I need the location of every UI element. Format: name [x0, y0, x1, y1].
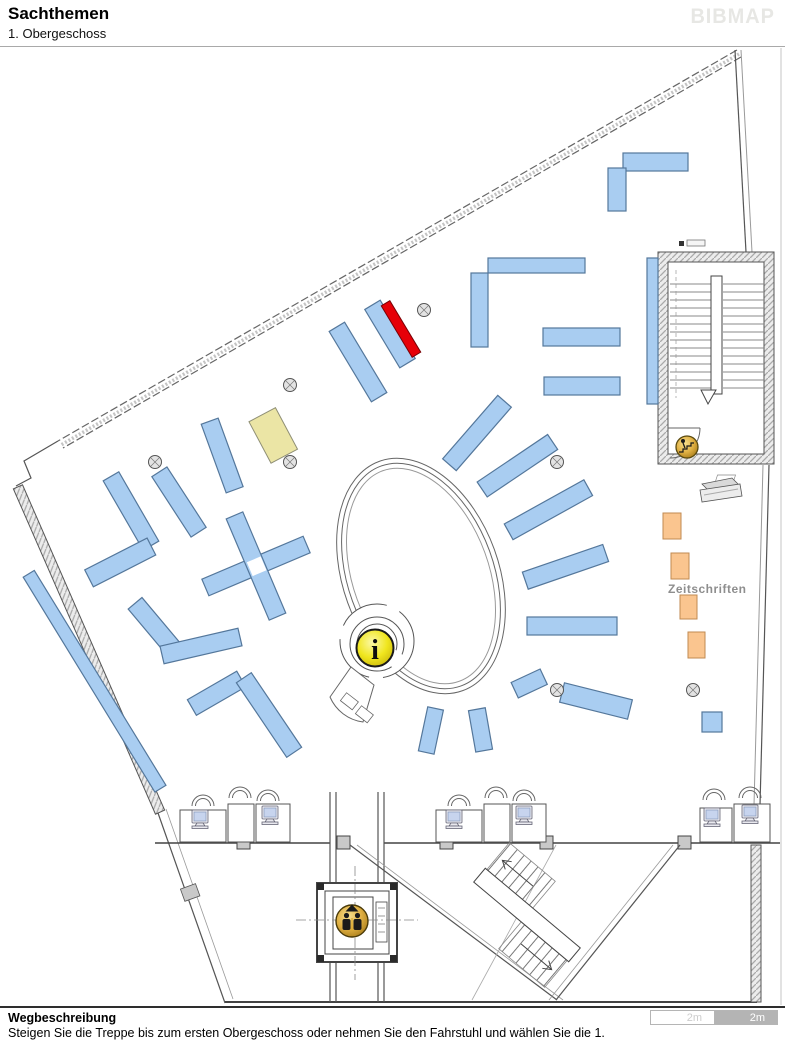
footer: Wegbeschreibung Steigen Sie die Treppe b…: [0, 1006, 785, 1043]
computer-workstation-icon: [516, 806, 532, 825]
floor-subtitle: 1. Obergeschoss: [8, 26, 106, 41]
bookshelf: [488, 258, 585, 273]
bookshelf: [511, 669, 547, 698]
elevator: [296, 792, 418, 1002]
bookshelf: [418, 707, 443, 754]
column-icon: [149, 456, 162, 469]
bookshelf: [236, 673, 301, 758]
column-icon: [551, 684, 564, 697]
bookshelf: [468, 708, 492, 752]
bookshelf: [560, 683, 633, 719]
open-staircase: [350, 841, 680, 1000]
bookshelf: [504, 480, 592, 540]
directions-text: Steigen Sie die Treppe bis zum ersten Ob…: [8, 1026, 605, 1040]
page-header: Sachthemen 1. Obergeschoss BIBMAP: [0, 0, 785, 47]
magazine-shelves: Zeitschriften: [663, 513, 747, 658]
magazine-shelf: [671, 553, 689, 579]
computer-workstation-icon: [192, 810, 208, 829]
bookshelf: [103, 472, 159, 550]
computer-workstation-icon: [704, 808, 720, 827]
stairwell: [658, 240, 774, 464]
column-icon: [284, 456, 297, 469]
bookshelf: [527, 617, 617, 635]
magazines-label: Zeitschriften: [668, 582, 747, 596]
counter: [155, 836, 780, 901]
copier-icon: [700, 475, 742, 502]
workstation-group: [436, 787, 546, 842]
elevator-icon: [336, 905, 368, 938]
bookshelf: [647, 258, 658, 404]
column-icon: [551, 456, 564, 469]
computer-workstation-icon: [446, 810, 462, 829]
special-shelf: [249, 408, 298, 464]
map-scale-bar: 2m 2m: [650, 1010, 778, 1025]
bookshelf: [152, 467, 206, 537]
directions-heading: Wegbeschreibung: [8, 1011, 116, 1025]
info-icon-letter: i: [371, 635, 379, 666]
stairs-icon: [676, 436, 698, 458]
magazine-shelf: [688, 632, 705, 658]
scale-segment: 2m: [650, 1010, 714, 1025]
bookshelf: [201, 418, 243, 493]
bookshelf: [477, 434, 558, 496]
workstation-group: [700, 787, 770, 842]
magazine-shelf: [680, 595, 697, 619]
bibmap-logo: BIBMAP: [691, 5, 775, 29]
info-desk: i: [330, 604, 414, 723]
column-icon: [687, 684, 700, 697]
bookshelf: [543, 328, 620, 346]
bookshelf: [443, 395, 512, 470]
scale-segment: 2m: [714, 1010, 778, 1025]
computer-workstation-icon: [262, 806, 278, 825]
workstation-group: [180, 787, 290, 842]
window-wall: [58, 50, 741, 448]
column-icon: [284, 379, 297, 392]
info-icon: i: [357, 630, 394, 667]
computer-workstation-icon: [742, 805, 758, 824]
bookshelf: [623, 153, 688, 171]
bookshelf: [187, 671, 245, 715]
bookshelves: [23, 153, 722, 792]
computer-workstations: [180, 787, 770, 842]
bookshelf: [544, 377, 620, 395]
magazine-shelf: [663, 513, 681, 539]
page-title: Sachthemen: [8, 4, 109, 24]
bookshelf: [329, 322, 387, 402]
bookshelf: [471, 273, 488, 347]
bookshelf: [85, 538, 156, 587]
bookshelf: [608, 168, 626, 211]
column-icon: [418, 304, 431, 317]
bookshelf: [522, 544, 608, 589]
floor-plan-map: i: [0, 0, 785, 1043]
bookshelf: [702, 712, 722, 732]
